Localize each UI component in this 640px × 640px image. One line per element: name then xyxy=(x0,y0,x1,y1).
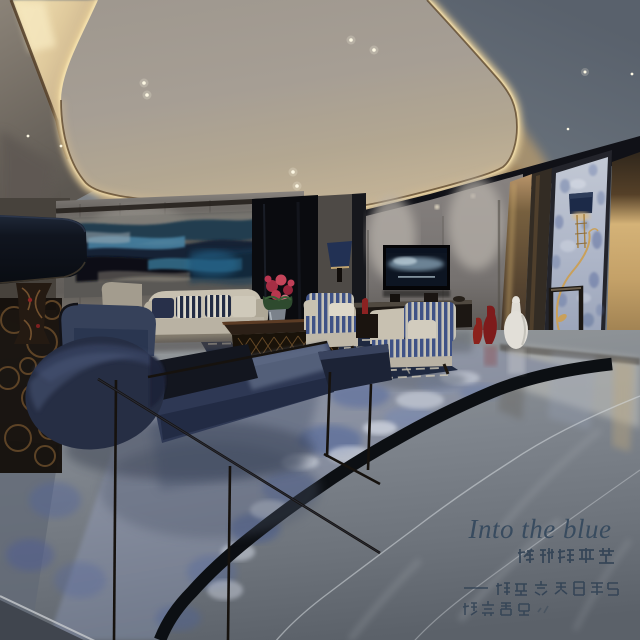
svg-text:Into the blue: Into the blue xyxy=(468,514,612,544)
